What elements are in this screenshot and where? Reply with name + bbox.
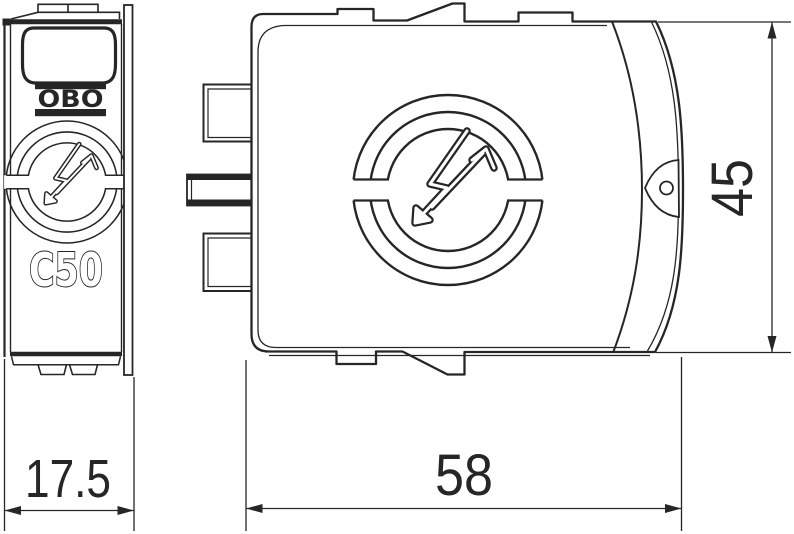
- arrowhead-right-icon: [665, 504, 682, 513]
- front-bottom-feet: [38, 365, 98, 375]
- technical-drawing-page: OBO C50: [0, 0, 794, 534]
- latch-pin-hole: [660, 182, 673, 195]
- arrowhead-left-icon: [5, 506, 22, 515]
- front-bottom-band: [12, 357, 121, 365]
- front-inspection-window: [23, 28, 116, 83]
- arrowhead-down-icon: [768, 336, 777, 353]
- side-contact-tab-middle: [187, 175, 252, 206]
- dimension-side-width: 58: [246, 357, 682, 531]
- arrowhead-up-icon: [768, 22, 777, 39]
- dimension-front-width: 17.5: [5, 359, 135, 531]
- technical-drawing: OBO C50: [0, 0, 794, 534]
- side-contact-tab-bottom: [204, 234, 252, 292]
- front-right-bar: [124, 5, 133, 375]
- obo-logo-bottom-bar: [35, 109, 106, 116]
- front-left-rail-cap: [3, 19, 11, 26]
- front-view: OBO C50: [3, 4, 133, 375]
- arrowhead-right-icon: [118, 506, 135, 515]
- arrowhead-left-icon: [246, 504, 263, 513]
- dimension-value-side-width: 58: [435, 443, 493, 508]
- surge-arrester-logo-icon: [4, 121, 130, 243]
- dimension-value-side-height: 45: [700, 159, 765, 217]
- obo-logo-icon: OBO: [35, 82, 106, 116]
- dimension-value-front-width: 17.5: [25, 449, 111, 509]
- front-top-band: [11, 12, 120, 19]
- front-top-tabs: [38, 4, 98, 12]
- product-code-label: C50: [29, 243, 103, 297]
- side-contact-tab-top: [204, 85, 252, 142]
- side-view: [187, 4, 683, 375]
